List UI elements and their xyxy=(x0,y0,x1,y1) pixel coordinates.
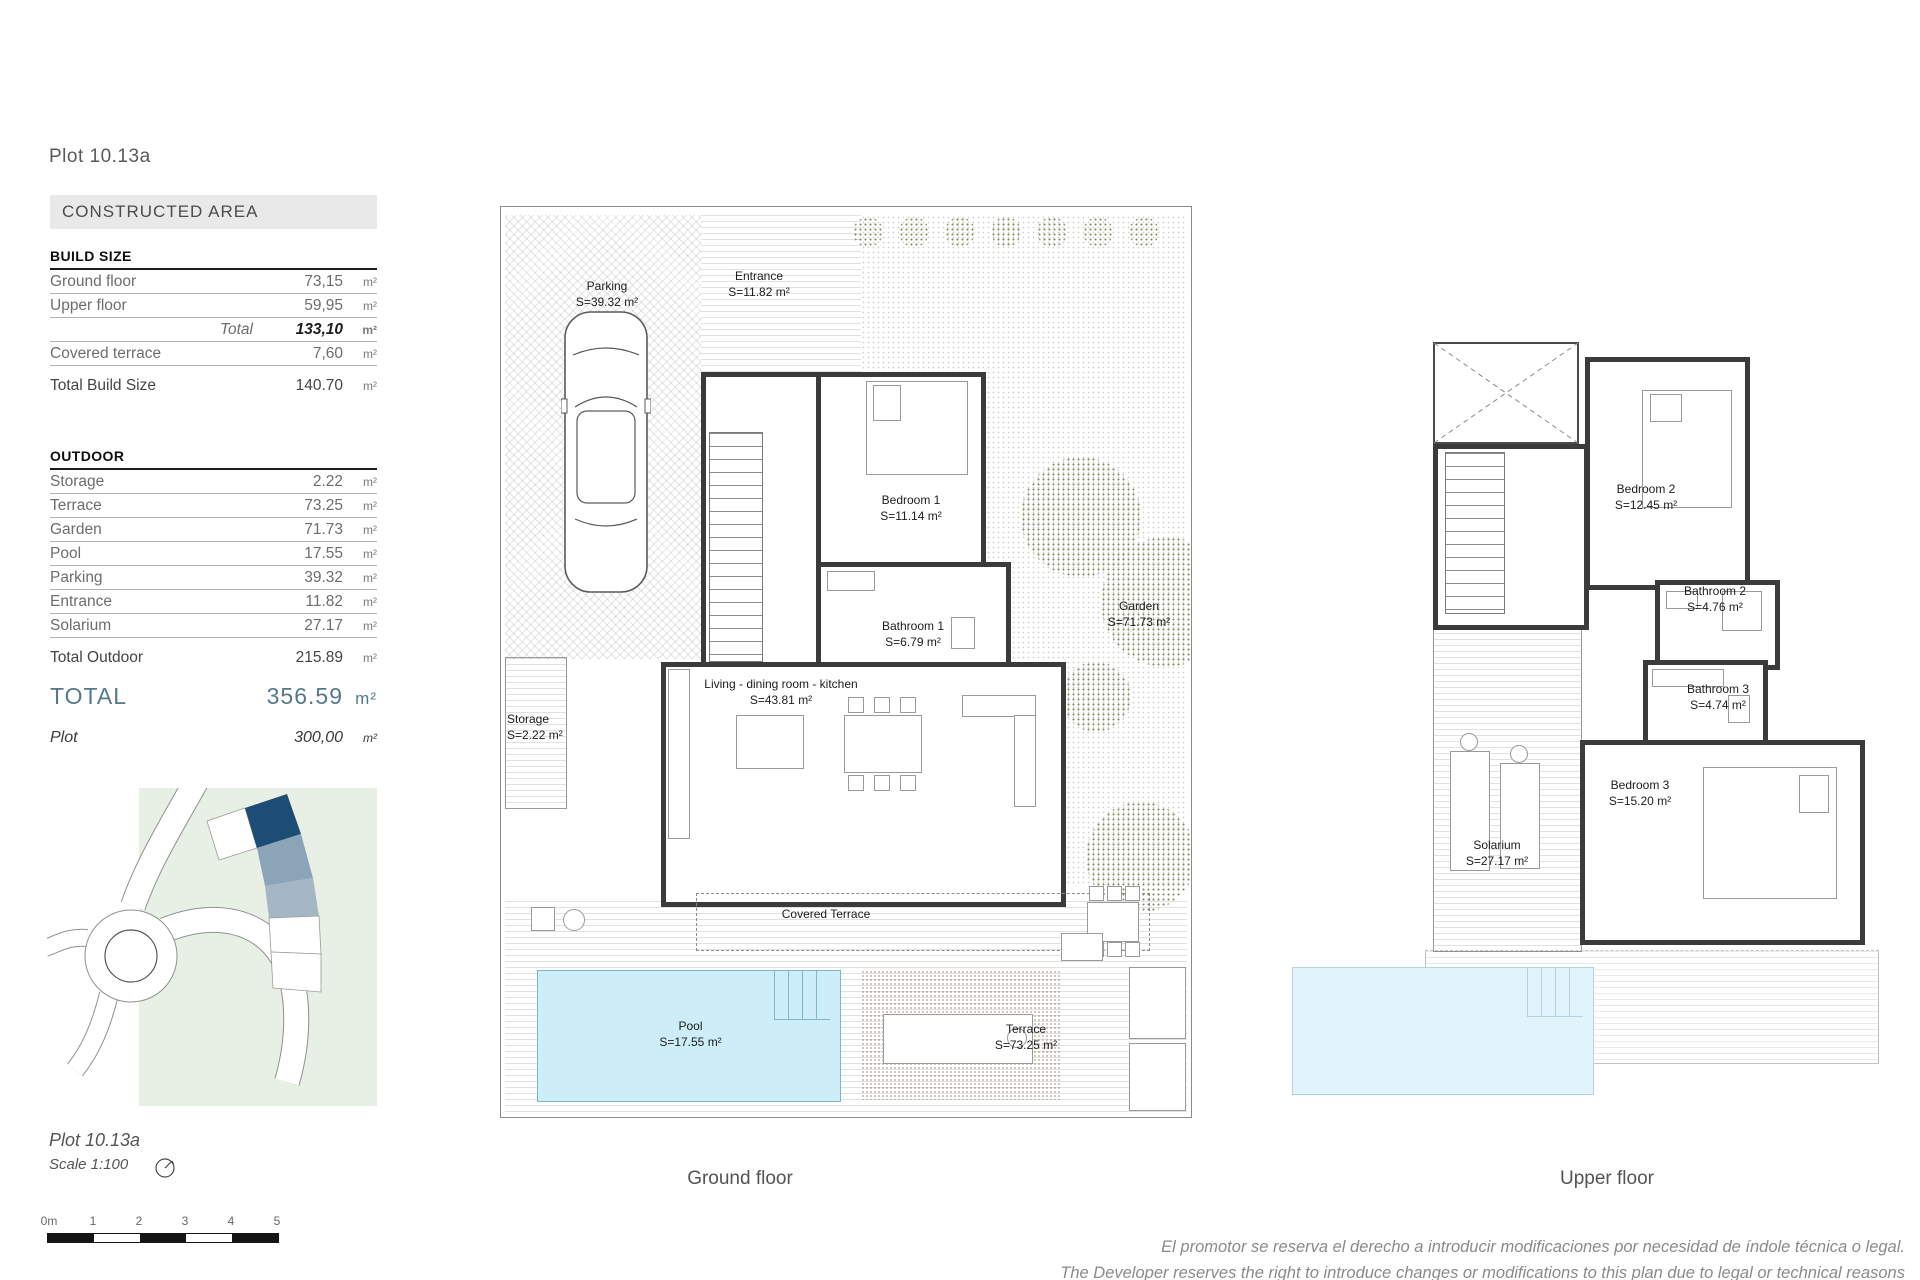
room-label-bedroom1: Bedroom 1 S=11.14 m² xyxy=(841,493,981,524)
pool: Pool S=17.55 m² xyxy=(537,970,841,1102)
room-label-entrance: Entrance S=11.82 m² xyxy=(689,269,829,300)
scale-segment xyxy=(94,1234,140,1242)
plot-label: Plot xyxy=(50,729,251,747)
room-name: Entrance xyxy=(689,269,829,285)
chair xyxy=(1089,886,1104,901)
scale-segment xyxy=(232,1234,278,1242)
stair-void xyxy=(1433,342,1579,444)
table-row: Entrance 11.82 m² xyxy=(50,590,377,614)
upper-staircase xyxy=(1445,452,1505,614)
bedroom2-room xyxy=(1585,357,1750,590)
room-name: Covered Terrace xyxy=(756,907,896,923)
room-name: Parking xyxy=(537,279,677,295)
room-area: S=4.74 m² xyxy=(1648,698,1788,714)
pillow xyxy=(873,385,901,421)
total-unit: m² xyxy=(343,689,377,709)
scalebar-label: 3 xyxy=(182,1214,189,1228)
row-unit: m² xyxy=(343,547,377,561)
page-title: Plot 10.13a xyxy=(49,146,151,168)
outdoor-table: OUTDOOR Storage 2.22 m² Terrace 73.25 m²… xyxy=(50,448,377,669)
room-area: S=17.55 m² xyxy=(618,1035,763,1051)
room-label-garden: Garden S=71.73 m² xyxy=(1069,599,1192,630)
table-row: Upper floor 59,95 m² xyxy=(50,294,377,318)
lounger-head xyxy=(1460,733,1478,751)
tree-icon xyxy=(1037,217,1067,247)
table-row: Ground floor 73,15 m² xyxy=(50,270,377,294)
outdoor-sofa xyxy=(1129,967,1186,1039)
pool-steps xyxy=(1527,968,1583,1017)
pool-steps xyxy=(774,971,830,1020)
room-name: Bathroom 1 xyxy=(843,619,983,635)
chair xyxy=(848,775,864,791)
pool-below-outline xyxy=(1292,967,1594,1095)
tree-icon xyxy=(899,217,929,247)
plot-unit: m² xyxy=(343,731,377,745)
room-label-solarium: Solarium S=27.17 m² xyxy=(1427,838,1567,869)
floor-plan-sheet: Plot 10.13a CONSTRUCTED AREA BUILD SIZE … xyxy=(0,0,1920,1280)
build-size-title: BUILD SIZE xyxy=(50,248,377,270)
plot-summary: Plot 300,00 m² xyxy=(50,729,377,747)
row-value: 7,60 xyxy=(271,345,343,363)
table-row: Pool 17.55 m² xyxy=(50,542,377,566)
scale-bar xyxy=(47,1233,279,1243)
chair xyxy=(900,697,916,713)
row-value: 73.25 xyxy=(271,497,343,515)
upper-floor-caption: Upper floor xyxy=(1407,1168,1807,1190)
tree-icon xyxy=(1129,217,1159,247)
tree-icon xyxy=(1061,662,1131,732)
table-row: Storage 2.22 m² xyxy=(50,470,377,494)
table-row: Garden 71.73 m² xyxy=(50,518,377,542)
row-unit: m² xyxy=(343,595,377,609)
room-area: S=12.45 m² xyxy=(1576,498,1716,514)
scale-segment xyxy=(48,1234,94,1242)
scalebar-label: 5 xyxy=(274,1214,281,1228)
room-area: S=11.82 m² xyxy=(689,285,829,301)
row-unit: m² xyxy=(343,275,377,289)
sofa xyxy=(1014,715,1036,807)
room-label-covered-terrace: Covered Terrace xyxy=(756,907,896,923)
total-label: TOTAL xyxy=(50,683,251,710)
constructed-area-header: CONSTRUCTED AREA xyxy=(50,195,377,229)
row-label: Pool xyxy=(50,545,271,563)
scale-label: Scale 1:100 xyxy=(49,1156,128,1173)
room-area: S=39.32 m² xyxy=(537,295,677,311)
bedroom3-room xyxy=(1580,740,1865,945)
room-label-living: Living - dining room - kitchen S=43.81 m… xyxy=(671,677,891,708)
row-value: 39.32 xyxy=(271,569,343,587)
room-area: S=43.81 m² xyxy=(671,693,891,709)
room-label-parking: Parking S=39.32 m² xyxy=(537,279,677,310)
planter xyxy=(563,909,585,931)
chair xyxy=(874,775,890,791)
scalebar-label: 2 xyxy=(136,1214,143,1228)
row-label: Garden xyxy=(50,521,271,539)
table-row: Parking 39.32 m² xyxy=(50,566,377,590)
tree-icon xyxy=(853,217,883,247)
total-value: 356.59 xyxy=(251,683,343,710)
disclaimer-line-en: The Developer reserves the right to intr… xyxy=(1060,1264,1905,1280)
disclaimer-line-es: El promotor se reserva el derecho a intr… xyxy=(1161,1238,1905,1256)
room-label-bathroom1: Bathroom 1 S=6.79 m² xyxy=(843,619,983,650)
table-row: Terrace 73.25 m² xyxy=(50,494,377,518)
table-row-total-outdoor: Total Outdoor 215.89 m² xyxy=(50,638,377,669)
room-area: S=6.79 m² xyxy=(843,635,983,651)
tree-icon xyxy=(1083,217,1113,247)
room-area: S=15.20 m² xyxy=(1575,794,1705,810)
car-icon xyxy=(561,307,651,597)
room-area: S=27.17 m² xyxy=(1427,854,1567,870)
scalebar-label: 0m xyxy=(41,1214,58,1228)
row-unit: m² xyxy=(343,323,377,337)
pillow xyxy=(1799,775,1829,813)
room-name: Bedroom 1 xyxy=(841,493,981,509)
chair xyxy=(1125,942,1140,957)
row-value: 2.22 xyxy=(271,473,343,491)
room-name: Bedroom 3 xyxy=(1575,778,1705,794)
room-area: S=71.73 m² xyxy=(1069,615,1192,631)
room-name: Bathroom 3 xyxy=(1648,682,1788,698)
row-unit: m² xyxy=(343,571,377,585)
planter xyxy=(531,907,555,931)
room-label-terrace: Terrace S=73.25 m² xyxy=(956,1022,1096,1053)
chair xyxy=(900,775,916,791)
tree-icon xyxy=(945,217,975,247)
row-value: 73,15 xyxy=(271,273,343,291)
staircase xyxy=(709,432,763,662)
row-unit: m² xyxy=(343,299,377,313)
total-summary: TOTAL 356.59 m² xyxy=(50,683,377,710)
dining-table xyxy=(844,715,922,773)
room-name: Pool xyxy=(618,1019,763,1035)
room-name: Bedroom 2 xyxy=(1576,482,1716,498)
room-name: Bathroom 2 xyxy=(1645,584,1785,600)
row-unit: m² xyxy=(343,619,377,633)
row-label: Storage xyxy=(50,473,271,491)
row-unit: m² xyxy=(343,499,377,513)
room-label-bathroom2: Bathroom 2 S=4.76 m² xyxy=(1645,584,1785,615)
room-label-bedroom3: Bedroom 3 S=15.20 m² xyxy=(1575,778,1705,809)
row-unit: m² xyxy=(343,379,377,393)
row-label: Total xyxy=(50,321,271,339)
sink xyxy=(827,571,875,591)
scale-segment xyxy=(140,1234,186,1242)
room-area: S=2.22 m² xyxy=(507,728,607,744)
room-area: S=4.76 m² xyxy=(1645,600,1785,616)
room-name: Terrace xyxy=(956,1022,1096,1038)
row-value: 11.82 xyxy=(271,593,343,611)
bedroom1-room xyxy=(816,372,986,577)
chair xyxy=(1107,942,1122,957)
chair xyxy=(1125,886,1140,901)
room-area: S=11.14 m² xyxy=(841,509,981,525)
row-value: 133,10 xyxy=(271,321,343,339)
north-arrow-icon xyxy=(152,1155,178,1181)
ground-floor-plan: Pool S=17.55 m² Parking S=39.32 m² Entra… xyxy=(500,206,1192,1118)
room-label-pool: Pool S=17.55 m² xyxy=(618,1019,763,1050)
row-label: Upper floor xyxy=(50,297,271,315)
ground-floor-caption: Ground floor xyxy=(540,1168,940,1190)
row-label: Parking xyxy=(50,569,271,587)
room-label-bathroom3: Bathroom 3 S=4.74 m² xyxy=(1648,682,1788,713)
row-unit: m² xyxy=(343,523,377,537)
sofa xyxy=(962,695,1036,717)
room-name: Storage xyxy=(507,712,607,728)
tree-icon xyxy=(991,217,1021,247)
build-size-table: BUILD SIZE Ground floor 73,15 m² Upper f… xyxy=(50,248,377,397)
row-label: Ground floor xyxy=(50,273,271,291)
site-location-map xyxy=(47,788,377,1114)
row-value: 59,95 xyxy=(271,297,343,315)
row-label: Total Build Size xyxy=(50,377,271,395)
kitchen-island xyxy=(736,715,804,769)
row-value: 140.70 xyxy=(271,377,343,395)
row-value: 71.73 xyxy=(271,521,343,539)
pillow xyxy=(1650,394,1682,422)
plot-value: 300,00 xyxy=(251,729,343,747)
row-unit: m² xyxy=(343,347,377,361)
scale-segment xyxy=(186,1234,232,1242)
row-value: 17.55 xyxy=(271,545,343,563)
legal-disclaimer: El promotor se reserva el derecho a intr… xyxy=(800,1234,1905,1280)
outdoor-title: OUTDOOR xyxy=(50,448,377,470)
row-label: Total Outdoor xyxy=(50,649,271,667)
room-label-bedroom2: Bedroom 2 S=12.45 m² xyxy=(1576,482,1716,513)
row-label: Terrace xyxy=(50,497,271,515)
table-row-total-build: Total Build Size 140.70 m² xyxy=(50,366,377,397)
room-name: Living - dining room - kitchen xyxy=(671,677,891,693)
table-row: Solarium 27.17 m² xyxy=(50,614,377,638)
scalebar-label: 1 xyxy=(90,1214,97,1228)
scalebar-label: 4 xyxy=(228,1214,235,1228)
footer-plot-title: Plot 10.13a xyxy=(49,1130,140,1151)
chair xyxy=(1107,886,1122,901)
row-label: Solarium xyxy=(50,617,271,635)
row-label: Covered terrace xyxy=(50,345,271,363)
table-row: Covered terrace 7,60 m² xyxy=(50,342,377,366)
row-label: Entrance xyxy=(50,593,271,611)
outdoor-table xyxy=(1061,933,1103,961)
solarium-area xyxy=(1433,620,1582,952)
room-name: Solarium xyxy=(1427,838,1567,854)
room-label-storage: Storage S=2.22 m² xyxy=(507,712,607,743)
row-unit: m² xyxy=(343,475,377,489)
room-name: Garden xyxy=(1069,599,1192,615)
room-area: S=73.25 m² xyxy=(956,1038,1096,1054)
row-unit: m² xyxy=(343,651,377,665)
table-row-total: Total 133,10 m² xyxy=(50,318,377,342)
outdoor-sofa xyxy=(1129,1043,1186,1111)
row-value: 27.17 xyxy=(271,617,343,635)
lounger-head xyxy=(1510,745,1528,763)
row-value: 215.89 xyxy=(271,649,343,667)
